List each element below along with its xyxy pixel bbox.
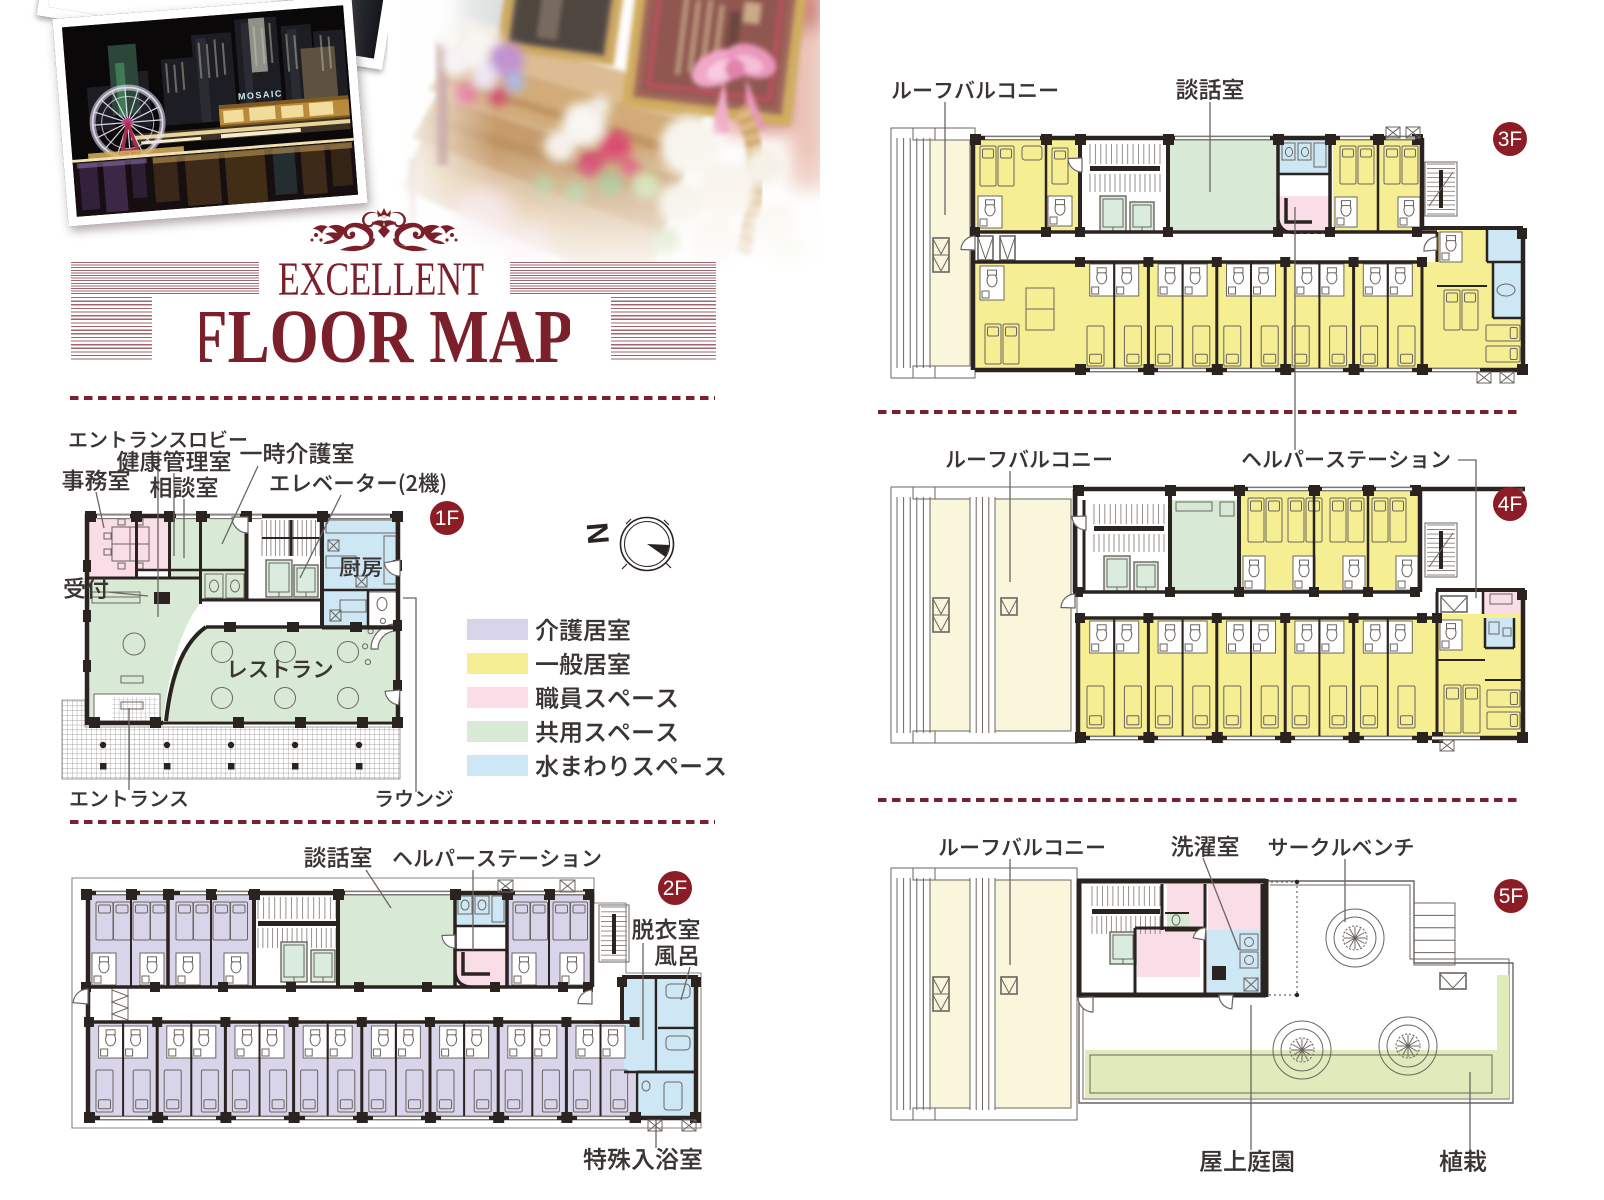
svg-text:3F: 3F <box>1498 128 1523 151</box>
svg-text:1F: 1F <box>435 507 460 530</box>
svg-text:2F: 2F <box>663 877 688 900</box>
svg-text:4F: 4F <box>1498 493 1523 516</box>
svg-text:N: N <box>581 521 616 545</box>
svg-text:5F: 5F <box>1499 885 1524 908</box>
